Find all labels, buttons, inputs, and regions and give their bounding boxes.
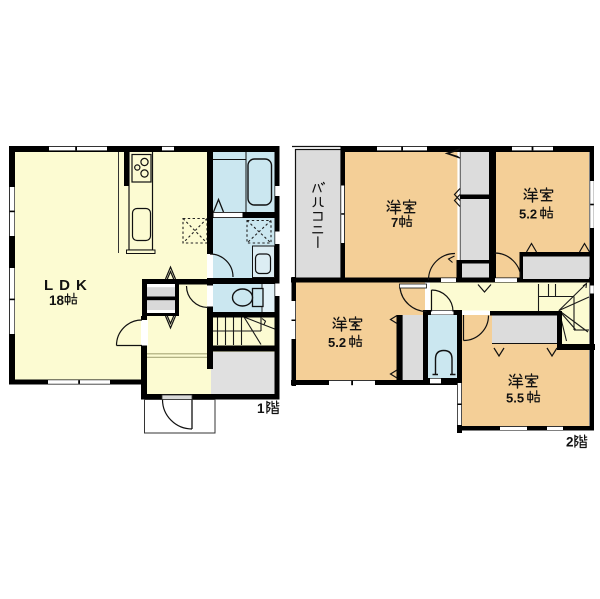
svg-text:18: 18 [49, 293, 65, 308]
svg-text:5.2: 5.2 [328, 335, 346, 350]
svg-text:LDK: LDK [44, 277, 93, 294]
svg-text:2: 2 [566, 435, 574, 450]
svg-text:7: 7 [391, 215, 398, 230]
svg-text:5.5: 5.5 [506, 391, 524, 406]
svg-text:5.2: 5.2 [519, 207, 537, 222]
svg-text:1: 1 [257, 401, 265, 416]
